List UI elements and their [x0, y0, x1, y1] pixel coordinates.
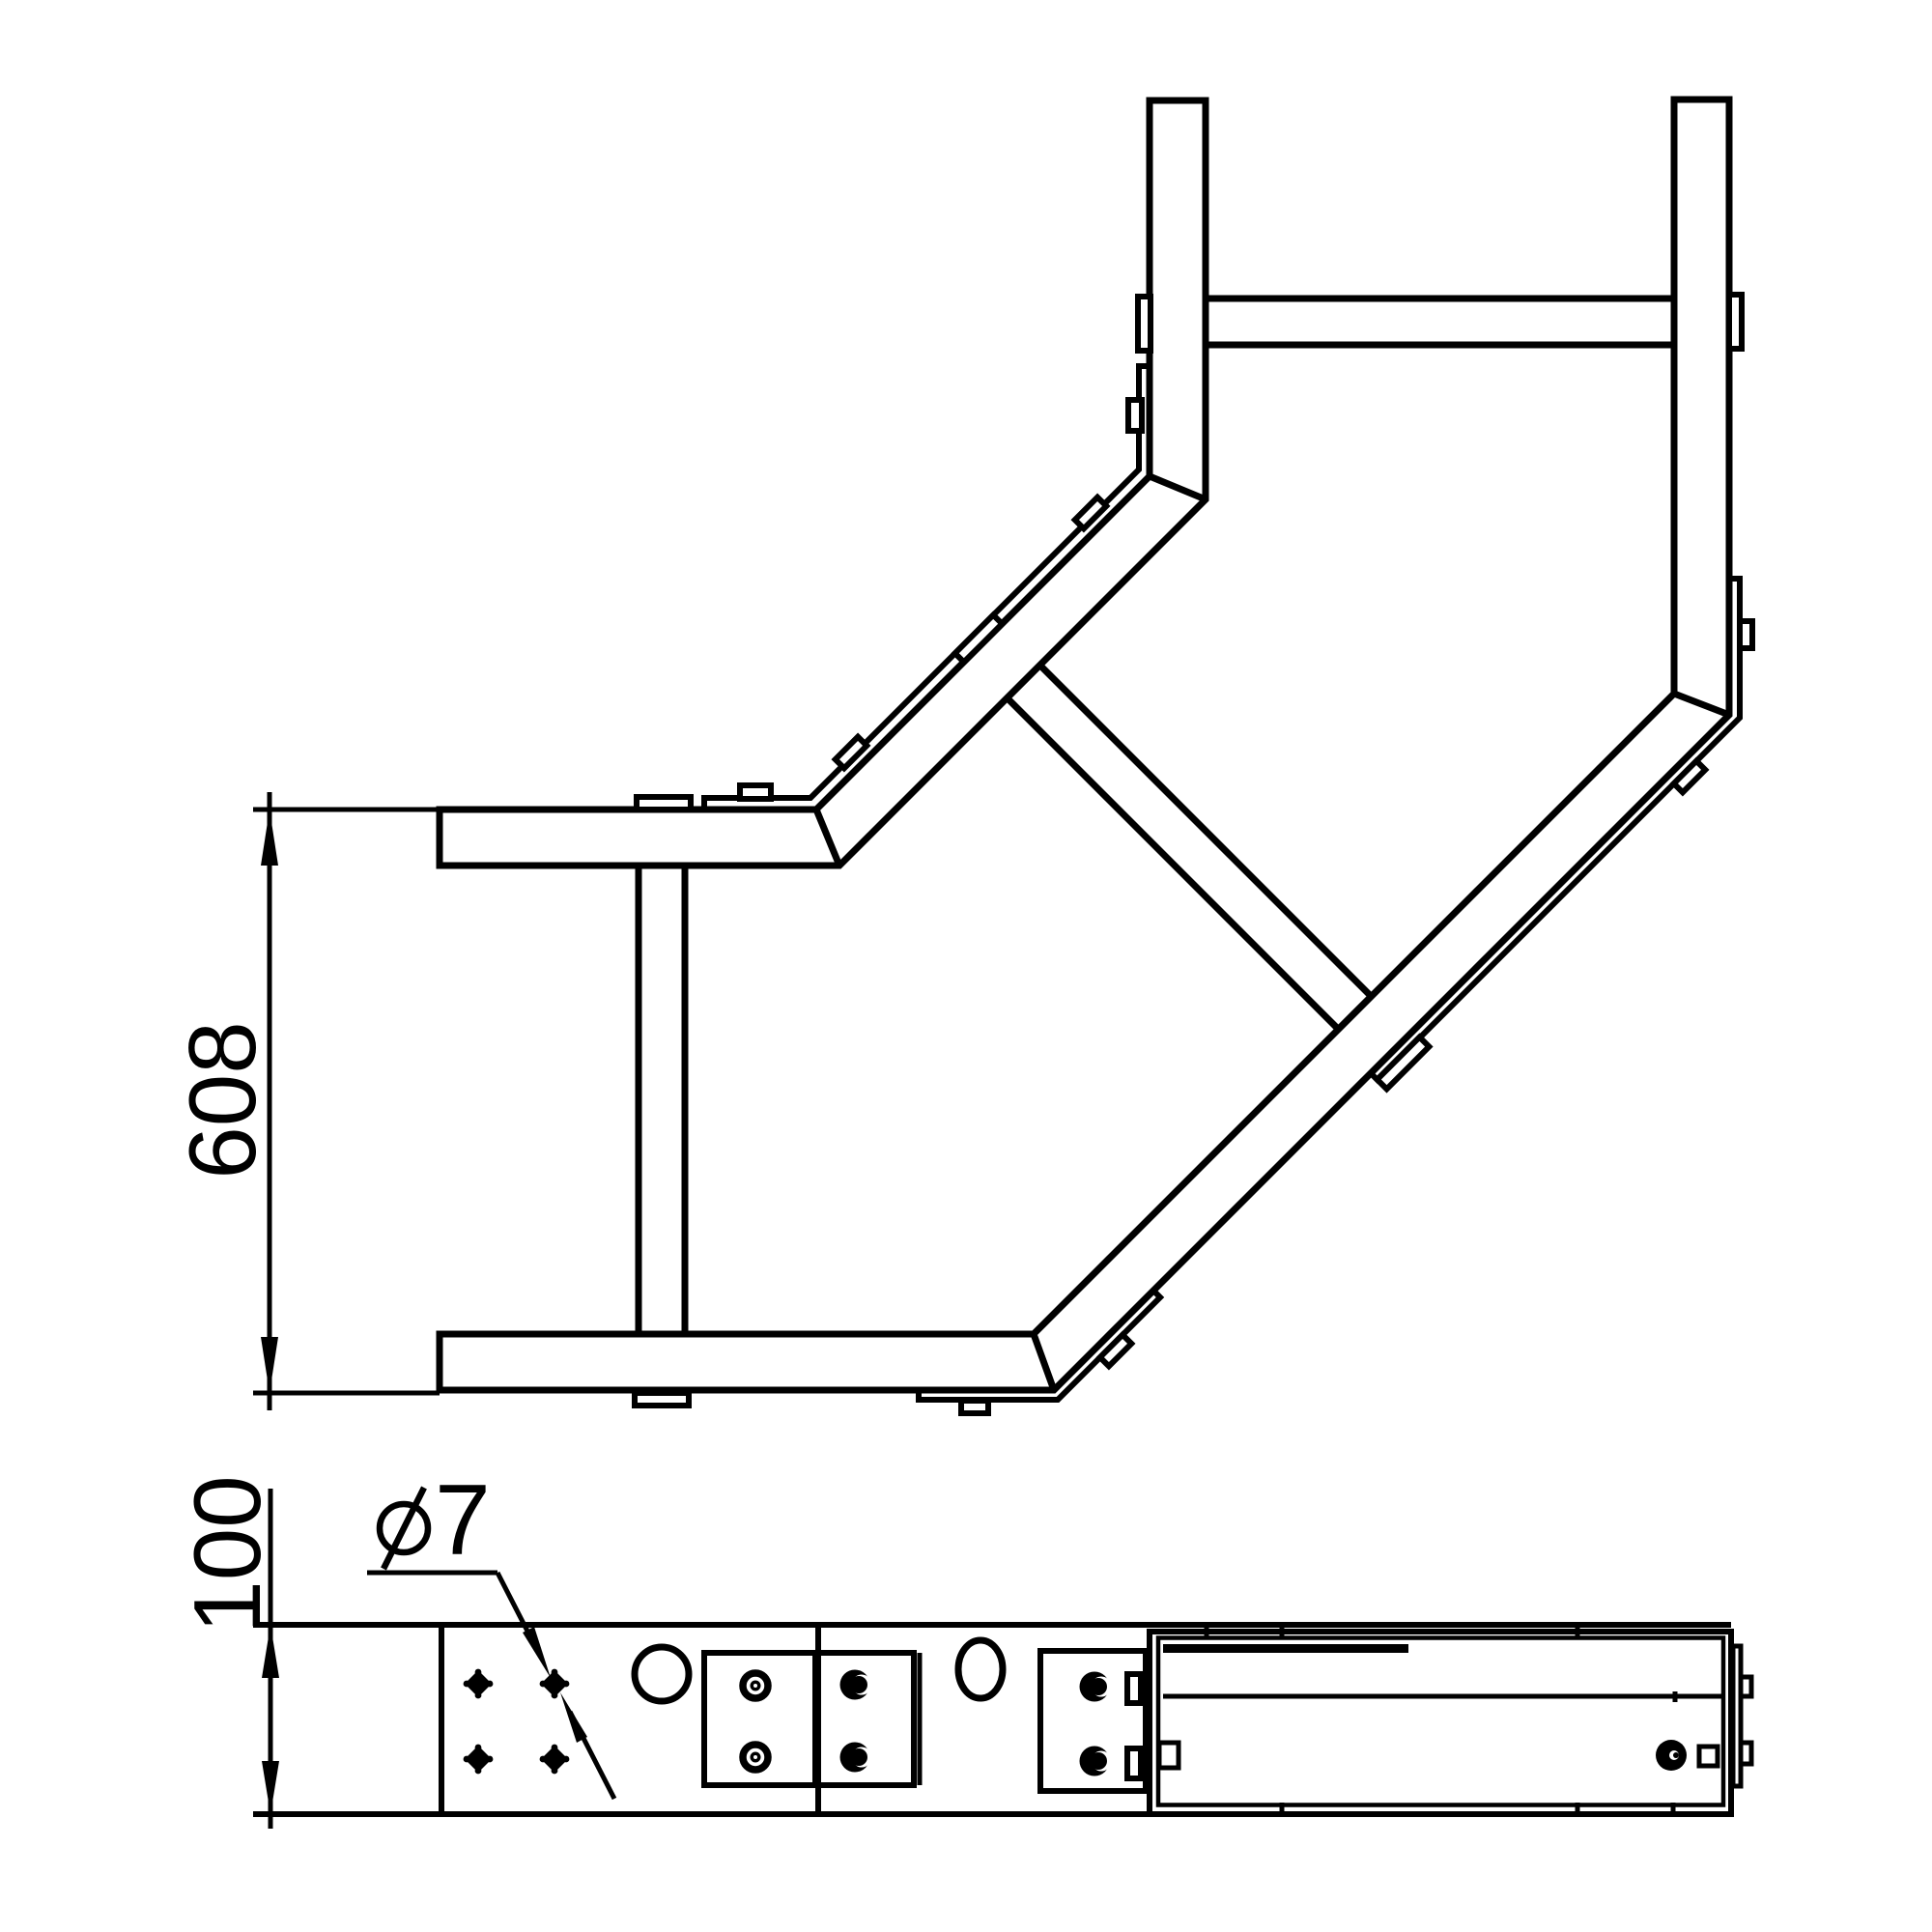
- svg-text:7: 7: [435, 1464, 491, 1577]
- svg-text:100: 100: [174, 1475, 280, 1634]
- svg-text:608: 608: [169, 1021, 275, 1179]
